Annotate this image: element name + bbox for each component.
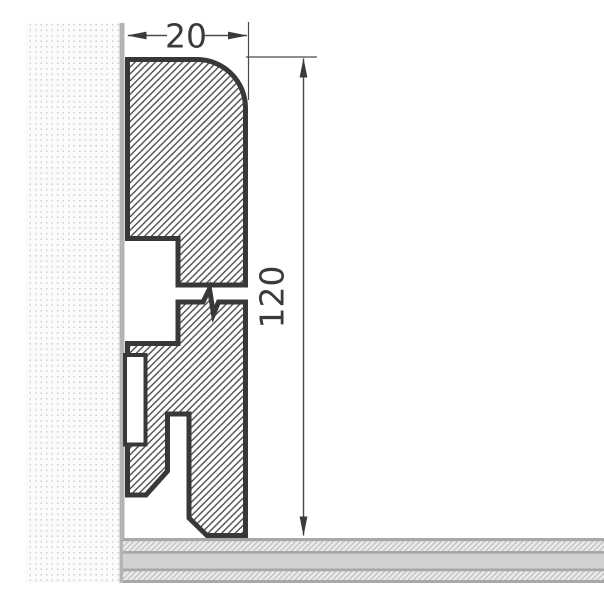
- height-arrow-bottom-icon: [300, 517, 308, 537]
- width-arrow-right-icon: [228, 32, 248, 40]
- wall-edge: [120, 23, 125, 583]
- floor-separator-line-1: [123, 551, 604, 554]
- floor-surface-line: [123, 538, 604, 541]
- profile-cable-channel: [125, 355, 146, 445]
- dimension-height-value: 120: [252, 266, 291, 329]
- floor-top-layer: [123, 541, 604, 551]
- drawing-svg: 20 120: [0, 0, 604, 604]
- technical-drawing: 20 120: [0, 0, 604, 604]
- floor: [123, 538, 604, 583]
- wall-surface: [26, 23, 120, 583]
- floor-bottom-layer: [123, 571, 604, 580]
- height-arrow-top-icon: [300, 58, 308, 78]
- floor-bottom-line: [123, 580, 604, 583]
- floor-middle-layer: [123, 554, 604, 569]
- floor-separator-line-2: [123, 569, 604, 572]
- profile-upper-section: [128, 60, 246, 286]
- wall: [26, 23, 125, 583]
- skirting-profile: [125, 60, 246, 536]
- width-arrow-left-icon: [127, 32, 147, 40]
- dimension-width-value: 20: [165, 16, 207, 55]
